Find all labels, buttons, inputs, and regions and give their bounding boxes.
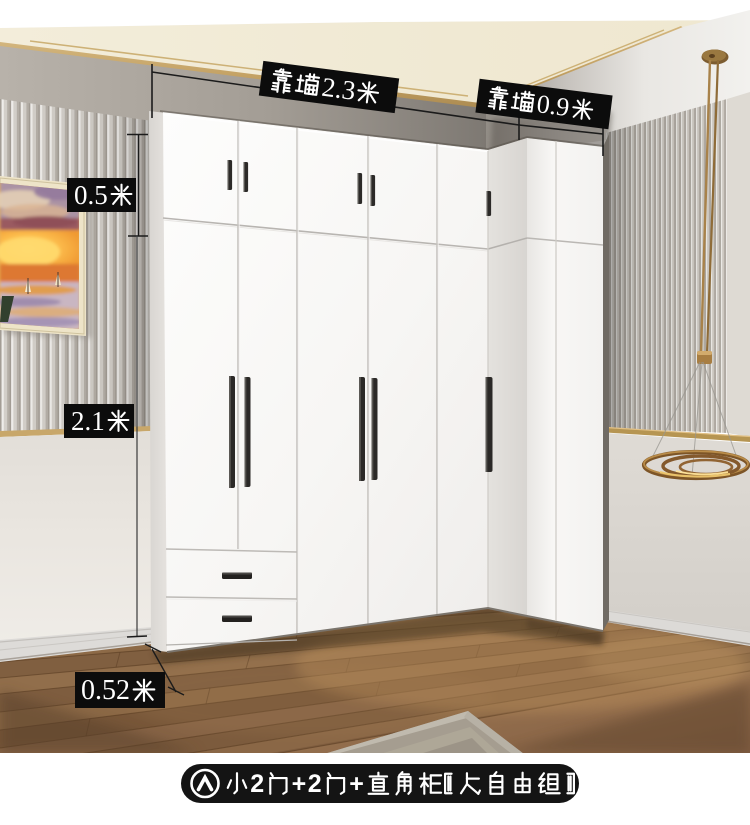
svg-text:2: 2 bbox=[308, 770, 322, 798]
svg-text:+: + bbox=[349, 770, 364, 798]
svg-text:0.52: 0.52 bbox=[81, 675, 130, 706]
svg-text:2.3: 2.3 bbox=[320, 72, 357, 106]
svg-text:2: 2 bbox=[250, 770, 264, 798]
svg-text:0.5: 0.5 bbox=[74, 180, 108, 210]
svg-text:+: + bbox=[292, 770, 307, 798]
svg-text:2.1: 2.1 bbox=[71, 406, 105, 436]
svg-text:0.9: 0.9 bbox=[535, 89, 571, 122]
